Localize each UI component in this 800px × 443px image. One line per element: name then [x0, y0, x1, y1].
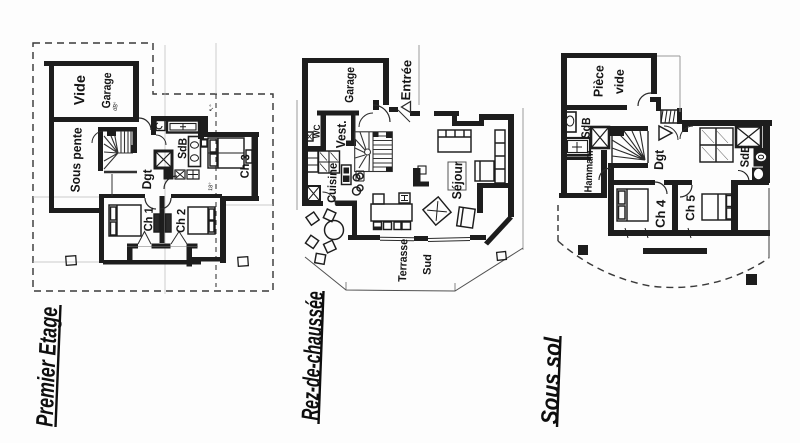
svg-text:Terrasse: Terrasse	[397, 239, 410, 282]
svg-text:Ch 1: Ch 1	[141, 207, 156, 232]
svg-text:↖°: ↖°	[209, 104, 216, 113]
svg-text:Ch 3: Ch 3	[238, 154, 253, 179]
svg-text:WC: WC	[312, 124, 322, 139]
svg-text:Ch 4: Ch 4	[653, 199, 669, 228]
svg-text:Vest.: Vest.	[333, 120, 349, 149]
svg-text:SdE: SdE	[738, 145, 753, 167]
svg-text:Hammam: Hammam	[583, 150, 596, 192]
svg-text:Ch 2: Ch 2	[174, 208, 189, 233]
svg-text:Cuisine: Cuisine	[325, 162, 340, 203]
svg-text:Dgt: Dgt	[139, 168, 155, 189]
svg-text:Ch 5: Ch 5	[683, 194, 698, 221]
svg-text:vide: vide	[612, 69, 627, 95]
svg-text:Dgt: Dgt	[651, 149, 667, 170]
svg-text:Vide: Vide	[72, 75, 89, 106]
svg-text:Séjour: Séjour	[449, 161, 465, 200]
svg-text:Sud: Sud	[422, 254, 435, 275]
svg-text:Garage: Garage	[99, 72, 114, 109]
svg-text:SdB: SdB	[579, 117, 594, 139]
svg-text:Sous sol: Sous sol	[537, 336, 568, 425]
svg-text:Entrée: Entrée	[398, 60, 414, 101]
svg-text:Rez-de-chaussée: Rez-de-chaussée	[297, 291, 329, 421]
svg-text:SdB: SdB	[175, 137, 190, 159]
svg-text:Pièce: Pièce	[591, 65, 607, 98]
svg-text:Garage: Garage	[342, 66, 357, 103]
svg-text:18°: 18°	[208, 182, 215, 191]
svg-text:Sous pente: Sous pente	[68, 127, 85, 192]
svg-text:dB°: dB°	[113, 101, 121, 111]
